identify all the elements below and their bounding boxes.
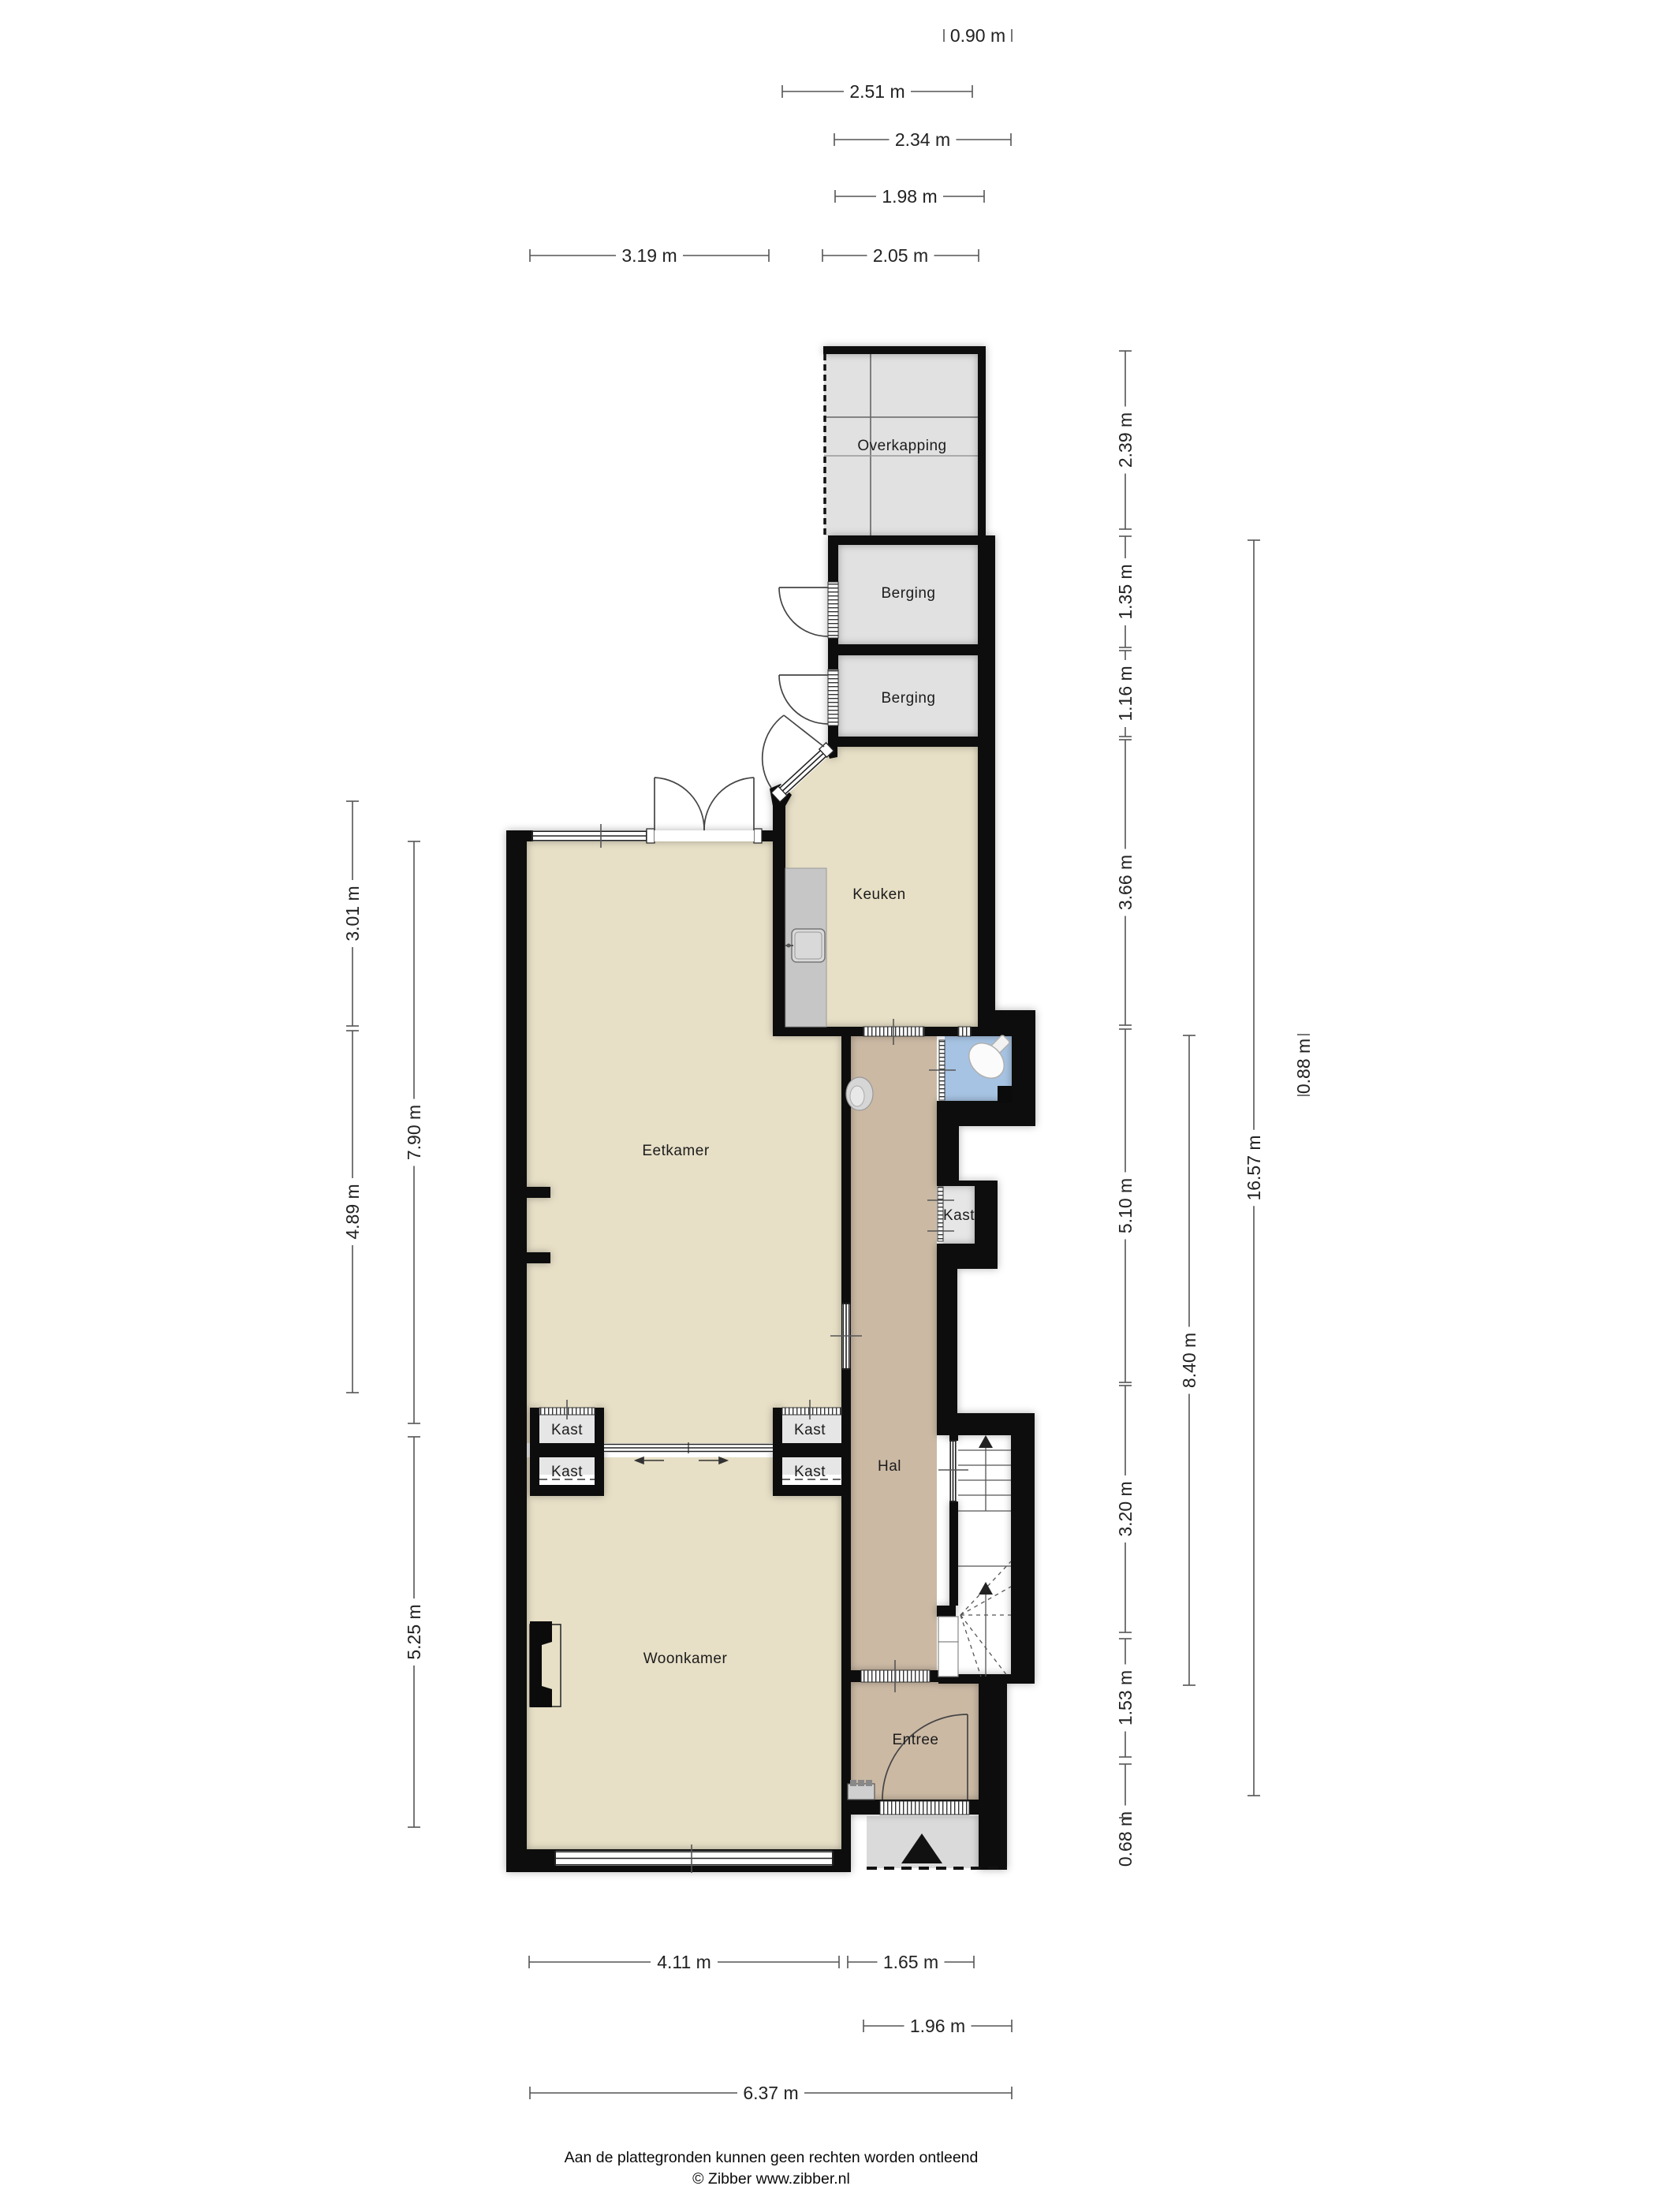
svg-text:1.65 m: 1.65 m (883, 1952, 938, 1972)
svg-text:Woonkamer: Woonkamer (643, 1651, 728, 1667)
svg-text:0.68 m: 0.68 m (1115, 1811, 1136, 1867)
svg-text:Overkapping: Overkapping (857, 438, 946, 454)
svg-text:Berging: Berging (882, 585, 936, 602)
svg-text:2.51 m: 2.51 m (849, 81, 904, 102)
svg-text:Kast: Kast (551, 1464, 583, 1480)
svg-text:0.88 m: 0.88 m (1293, 1039, 1314, 1094)
svg-text:Entree: Entree (893, 1732, 939, 1748)
svg-text:1.98 m: 1.98 m (882, 186, 937, 207)
svg-text:Kast: Kast (943, 1207, 975, 1224)
svg-text:7.90 m: 7.90 m (404, 1105, 424, 1160)
svg-text:16.57 m: 16.57 m (1244, 1135, 1264, 1200)
svg-text:1.53 m: 1.53 m (1115, 1670, 1136, 1725)
svg-text:2.39 m: 2.39 m (1115, 412, 1136, 468)
svg-text:6.37 m: 6.37 m (743, 2083, 798, 2103)
svg-text:1.16 m: 1.16 m (1115, 666, 1136, 721)
svg-text:© Zibber www.zibber.nl: © Zibber www.zibber.nl (692, 2170, 850, 2188)
svg-text:Kast: Kast (551, 1422, 583, 1438)
svg-text:Kast: Kast (794, 1422, 826, 1438)
svg-text:4.11 m: 4.11 m (657, 1952, 711, 1972)
svg-text:3.01 m: 3.01 m (342, 886, 363, 941)
svg-text:3.20 m: 3.20 m (1115, 1481, 1136, 1536)
svg-text:8.40 m: 8.40 m (1179, 1333, 1199, 1388)
svg-text:2.05 m: 2.05 m (873, 245, 928, 266)
svg-text:1.35 m: 1.35 m (1115, 564, 1136, 619)
svg-text:3.66 m: 3.66 m (1115, 855, 1136, 910)
svg-text:Eetkamer: Eetkamer (642, 1143, 709, 1159)
svg-text:Berging: Berging (882, 690, 936, 707)
svg-text:0.90 m: 0.90 m (950, 25, 1005, 46)
svg-text:5.25 m: 5.25 m (404, 1604, 424, 1659)
svg-text:3.19 m: 3.19 m (621, 245, 677, 266)
svg-text:5.10 m: 5.10 m (1115, 1178, 1136, 1233)
svg-text:Kast: Kast (794, 1464, 826, 1480)
svg-text:4.89 m: 4.89 m (342, 1184, 363, 1239)
svg-text:Aan de plattegronden kunnen ge: Aan de plattegronden kunnen geen rechten… (565, 2149, 979, 2166)
svg-text:Keuken: Keuken (852, 886, 905, 903)
svg-text:Hal: Hal (878, 1458, 901, 1475)
svg-text:2.34 m: 2.34 m (895, 129, 950, 150)
svg-text:1.96 m: 1.96 m (910, 2016, 965, 2036)
